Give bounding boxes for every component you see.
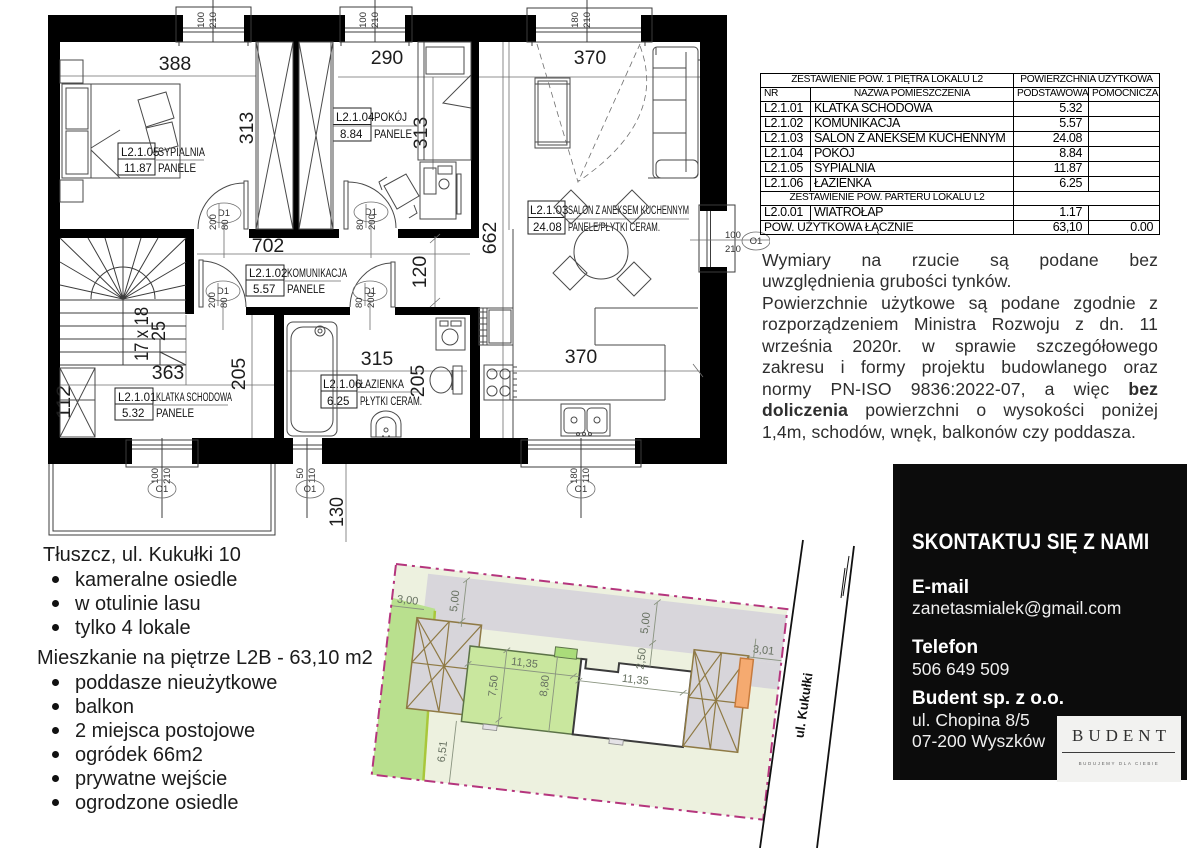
svg-text:2,50: 2,50	[635, 647, 649, 670]
svg-text:8,80: 8,80	[538, 675, 552, 698]
svg-text:5,00: 5,00	[448, 590, 462, 613]
svg-text:ul. Kukułki: ul. Kukułki	[792, 672, 816, 739]
svg-text:6,51: 6,51	[436, 740, 450, 763]
svg-text:3,00: 3,00	[396, 593, 419, 607]
svg-text:5,00: 5,00	[639, 612, 653, 635]
svg-text:3,01: 3,01	[752, 643, 775, 657]
svg-text:7,50: 7,50	[486, 675, 500, 698]
